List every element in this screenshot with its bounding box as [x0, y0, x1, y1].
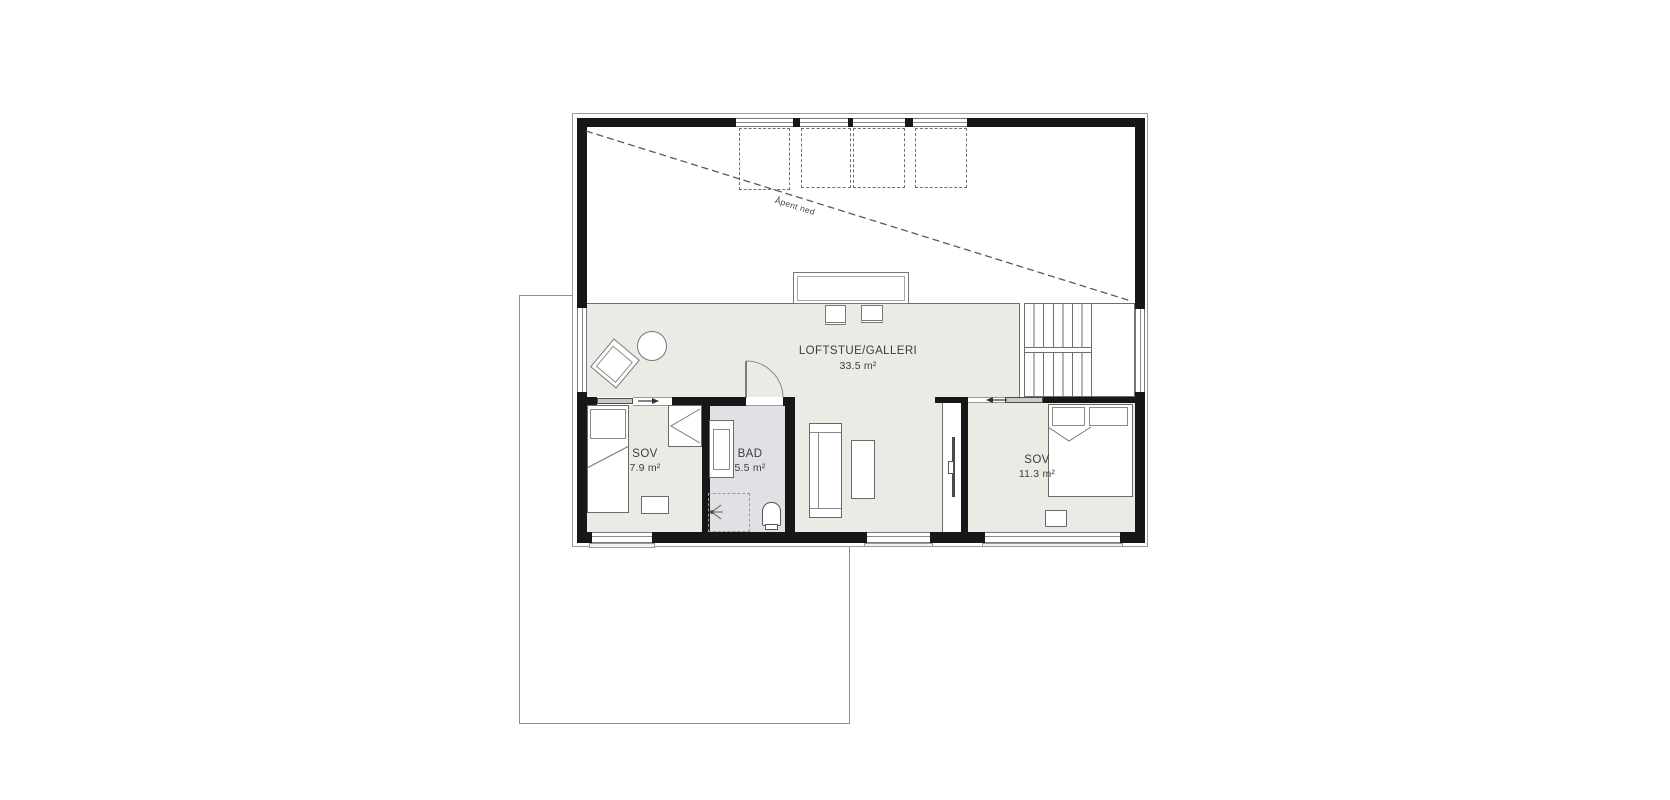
window — [592, 532, 652, 543]
sofa-back — [810, 432, 819, 509]
toilet-icon — [762, 502, 781, 526]
bed-pillow — [1089, 407, 1128, 426]
dresser-icon — [641, 496, 669, 514]
exterior-wall-bottom — [1120, 532, 1145, 543]
wall-pier — [793, 118, 800, 127]
exterior-wall-right — [1135, 118, 1145, 309]
window — [736, 118, 793, 127]
exterior-wall-top — [967, 118, 1145, 127]
window — [1135, 309, 1145, 392]
exterior-wall-right — [1135, 392, 1145, 532]
skylight-dashed — [853, 128, 905, 188]
round-table-icon — [637, 331, 667, 361]
sofa-armrest — [810, 424, 841, 433]
exterior-wall-bottom — [652, 532, 867, 543]
exterior-wall-left — [577, 392, 587, 532]
window — [853, 118, 905, 127]
chair-icon — [861, 305, 883, 323]
gallery-niche-inner — [797, 276, 905, 301]
bathroom-wall-right — [785, 397, 795, 532]
toilet-base — [765, 524, 778, 530]
door-opening — [746, 397, 783, 406]
room-label-loftstue: LOFTSTUE/GALLERI — [799, 345, 917, 357]
interior-wall — [1043, 397, 1145, 403]
door-opening — [968, 397, 1005, 403]
sofa-icon — [809, 423, 842, 518]
room-label-bad: BAD — [738, 448, 763, 460]
vanity-basin — [713, 429, 730, 470]
bedroom-right-wall — [961, 397, 968, 532]
room-area-loftstue: 33.5 m² — [840, 360, 877, 372]
window — [800, 118, 848, 127]
room-area-bad: 5.5 m² — [735, 462, 766, 474]
stair-landing-divider — [1091, 303, 1092, 397]
skylight-dashed — [801, 128, 851, 188]
room-label-sov-right: SOV — [1024, 454, 1050, 466]
room-label-sov-left: SOV — [632, 448, 658, 460]
coffee-table-icon — [851, 440, 875, 499]
window — [913, 118, 967, 127]
window — [867, 532, 930, 543]
door-opening — [633, 397, 672, 406]
exterior-wall-bottom — [930, 532, 985, 543]
stair-upper-run — [1024, 303, 1091, 347]
tv-mount — [948, 461, 954, 474]
room-area-sov-right: 11.3 m² — [1019, 468, 1055, 480]
exterior-wall-bottom — [577, 532, 592, 543]
room-area-sov-left: 7.9 m² — [630, 462, 661, 474]
shower-area — [708, 493, 750, 532]
stair-lower-run — [1024, 353, 1091, 397]
skylight-dashed — [915, 128, 967, 188]
wall-pier — [905, 118, 913, 127]
window-sill — [982, 543, 1123, 547]
sliding-door — [597, 398, 633, 404]
chair-icon — [825, 305, 846, 325]
skylight-dashed — [739, 128, 790, 190]
window — [985, 532, 1120, 543]
window-sill — [864, 543, 933, 547]
exterior-wall-top — [577, 118, 736, 127]
bed-pillow — [590, 409, 626, 439]
sofa-armrest — [810, 508, 841, 517]
wardrobe-icon — [668, 405, 702, 447]
floor-plan: Åpent ned LOFTSTUE/GALLERI 33.5 m² SOV 7… — [0, 0, 1670, 800]
dresser-icon — [1045, 510, 1067, 527]
window — [577, 308, 587, 392]
bed-pillow — [1052, 407, 1085, 426]
exterior-wall-left — [577, 118, 587, 308]
window-sill — [589, 543, 655, 548]
gallery-niche — [793, 272, 909, 304]
sliding-door — [1005, 397, 1043, 403]
